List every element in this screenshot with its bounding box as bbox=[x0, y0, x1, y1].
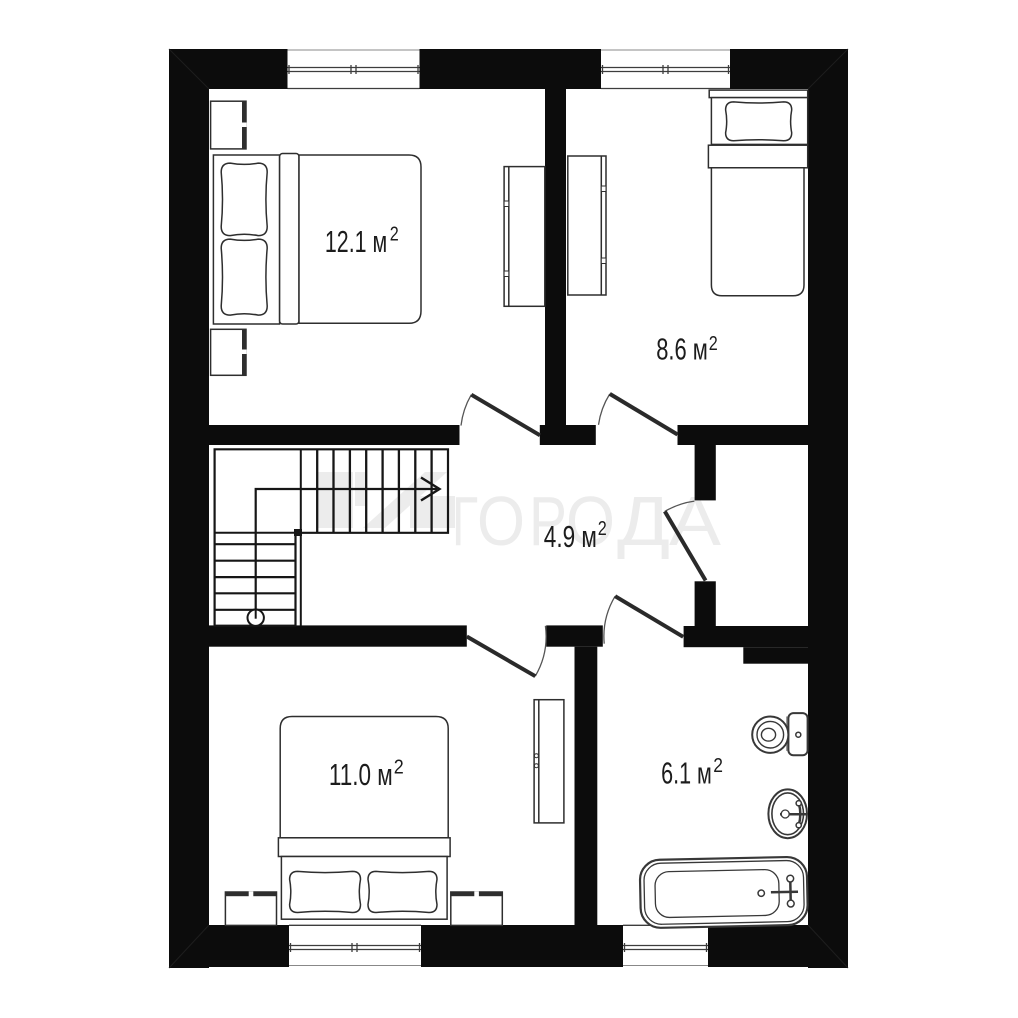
svg-text:11.0 м: 11.0 м bbox=[329, 758, 393, 792]
svg-text:8.6 м: 8.6 м bbox=[656, 333, 708, 367]
svg-text:Д: Д bbox=[617, 482, 670, 560]
svg-text:2: 2 bbox=[394, 757, 404, 779]
svg-text:2: 2 bbox=[598, 518, 607, 540]
svg-text:6.1 м: 6.1 м bbox=[661, 756, 712, 790]
svg-text:Г: Г bbox=[452, 482, 478, 560]
svg-text:4.9 м: 4.9 м bbox=[544, 520, 597, 554]
svg-text:2: 2 bbox=[709, 333, 718, 355]
svg-text:12.1 м: 12.1 м bbox=[325, 225, 387, 259]
svg-text:2: 2 bbox=[713, 755, 723, 777]
svg-text:О: О bbox=[477, 482, 525, 560]
svg-text:2: 2 bbox=[390, 224, 399, 246]
